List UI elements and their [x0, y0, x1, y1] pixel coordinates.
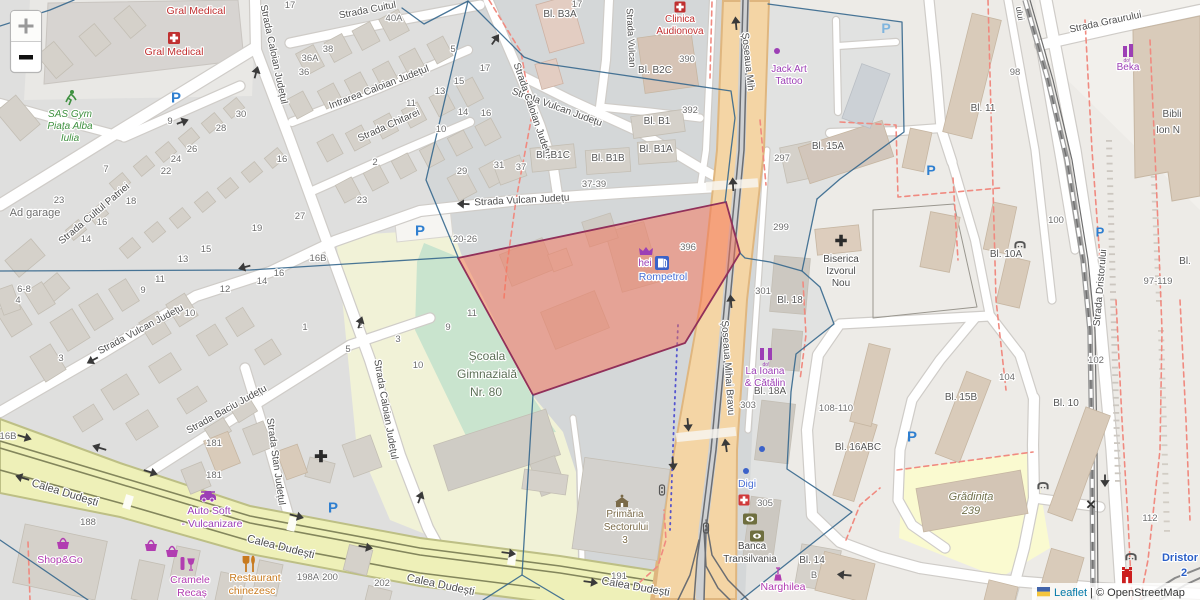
svg-text:16: 16 [277, 154, 288, 165]
svg-text:9: 9 [167, 116, 172, 127]
svg-text:3: 3 [58, 353, 63, 364]
svg-text:40A: 40A [386, 13, 404, 24]
svg-text:297: 297 [774, 153, 790, 164]
svg-text:15: 15 [454, 76, 465, 87]
svg-text:15: 15 [201, 244, 212, 255]
svg-text:Izvorul: Izvorul [826, 266, 855, 277]
svg-text:108-110: 108-110 [819, 403, 853, 414]
svg-text:303: 303 [740, 400, 756, 411]
svg-text:16B: 16B [0, 431, 16, 442]
svg-text:28: 28 [216, 123, 227, 134]
svg-text:16B: 16B [310, 253, 327, 264]
svg-text:Bl. B1A: Bl. B1A [639, 144, 673, 155]
svg-text:Cramele: Cramele [170, 574, 210, 586]
svg-text:✚: ✚ [835, 233, 848, 250]
svg-text:Transilvania: Transilvania [723, 554, 777, 565]
svg-text:7: 7 [103, 164, 108, 175]
svg-text:301: 301 [755, 286, 771, 297]
svg-text:13: 13 [178, 254, 189, 265]
svg-text:26: 26 [187, 144, 198, 155]
svg-text:305: 305 [757, 498, 773, 509]
svg-text:4: 4 [15, 295, 20, 306]
svg-text:18: 18 [126, 196, 137, 207]
svg-text:hei: hei [638, 258, 651, 269]
svg-text:Bl. B3A: Bl. B3A [543, 9, 577, 20]
svg-text:9: 9 [445, 322, 450, 333]
svg-text:13: 13 [435, 86, 446, 97]
svg-text:10: 10 [413, 360, 424, 371]
svg-text:P: P [926, 162, 935, 178]
svg-text:2: 2 [372, 157, 377, 168]
svg-text:97-119: 97-119 [1144, 276, 1173, 287]
svg-text:Ion N: Ion N [1156, 125, 1180, 136]
svg-text:Bl. B2C: Bl. B2C [638, 65, 672, 76]
svg-text:P: P [907, 428, 917, 445]
svg-text:16: 16 [481, 108, 492, 119]
svg-text:- Vulcanizare: - Vulcanizare [182, 518, 243, 530]
svg-text:Bl. 15A: Bl. 15A [812, 141, 845, 152]
svg-text:Bibli: Bibli [1163, 109, 1182, 120]
svg-text:P: P [1096, 225, 1105, 240]
svg-text:Clinica: Clinica [665, 14, 695, 25]
svg-text:104: 104 [999, 372, 1015, 383]
svg-text:Bl. 16ABC: Bl. 16ABC [835, 442, 881, 453]
svg-text:Rompetrol: Rompetrol [639, 271, 687, 283]
svg-text:22: 22 [161, 166, 172, 177]
svg-text:Grădinița: Grădinița [949, 491, 994, 503]
svg-text:Bl. 14: Bl. 14 [799, 555, 825, 566]
svg-text:12: 12 [220, 284, 231, 295]
svg-text:Bl. 15B: Bl. 15B [945, 392, 978, 403]
svg-text:P: P [881, 20, 890, 36]
svg-text:P: P [328, 499, 338, 516]
svg-text:Primăria: Primăria [606, 509, 644, 520]
svg-text:P: P [171, 89, 181, 106]
svg-text:202: 202 [374, 578, 390, 589]
svg-text:Nou: Nou [832, 278, 850, 289]
svg-text:20-26: 20-26 [453, 234, 477, 245]
svg-text:112: 112 [1142, 513, 1157, 524]
svg-text:11: 11 [467, 308, 477, 319]
svg-text:30: 30 [236, 109, 247, 120]
svg-text:29: 29 [457, 166, 468, 177]
svg-text:Nr. 80: Nr. 80 [470, 385, 502, 399]
svg-text:14: 14 [257, 276, 268, 287]
svg-text:16: 16 [97, 217, 108, 228]
svg-text:Gral Medical: Gral Medical [145, 46, 204, 58]
svg-text:19: 19 [252, 223, 263, 234]
svg-text:Școala: Școala [469, 349, 506, 363]
svg-text:392: 392 [682, 105, 698, 116]
svg-text:299: 299 [773, 222, 789, 233]
svg-text:do!: do! [1124, 58, 1131, 64]
svg-text:Biserica: Biserica [823, 254, 859, 265]
svg-text:181: 181 [206, 438, 222, 449]
svg-text:Recaș: Recaș [177, 587, 207, 599]
svg-text:3: 3 [395, 334, 400, 345]
svg-text:Tattoo: Tattoo [775, 76, 803, 87]
svg-text:36: 36 [299, 67, 310, 78]
svg-text:do!: do! [763, 362, 770, 368]
svg-text:188: 188 [80, 517, 96, 528]
svg-text:100: 100 [1048, 215, 1064, 226]
svg-text:200: 200 [322, 572, 338, 583]
svg-text:|: | [1090, 587, 1093, 599]
svg-text:SAS Gym: SAS Gym [48, 109, 92, 120]
svg-text:17: 17 [480, 63, 491, 74]
svg-text:10: 10 [185, 308, 196, 319]
svg-text:Leaflet: Leaflet [1054, 587, 1087, 599]
svg-text:✚: ✚ [314, 449, 327, 466]
svg-text:Digi: Digi [738, 478, 756, 490]
svg-text:Bl. B1: Bl. B1 [644, 116, 671, 127]
svg-text:Audionova: Audionova [656, 26, 704, 37]
svg-text:P: P [415, 222, 425, 239]
svg-text:23: 23 [357, 195, 368, 206]
svg-text:Bl. 10: Bl. 10 [1053, 398, 1079, 409]
svg-text:Gimnazială: Gimnazială [457, 367, 517, 381]
svg-text:102: 102 [1088, 355, 1104, 366]
svg-text:2: 2 [1181, 567, 1187, 579]
svg-text:181: 181 [206, 470, 222, 481]
svg-text:Ad garage: Ad garage [10, 207, 61, 219]
svg-text:5: 5 [345, 344, 350, 355]
svg-text:11: 11 [406, 98, 416, 109]
svg-text:198A: 198A [297, 572, 320, 583]
svg-text:Bl. B1B: Bl. B1B [591, 153, 625, 164]
svg-text:14: 14 [458, 107, 469, 118]
svg-text:24: 24 [171, 154, 182, 165]
svg-text:98: 98 [1010, 67, 1021, 78]
svg-text:27: 27 [295, 211, 306, 222]
svg-text:Bl. 11: Bl. 11 [971, 103, 996, 114]
svg-text:9: 9 [140, 285, 145, 296]
svg-text:191: 191 [611, 571, 627, 582]
svg-text:Shop&Go: Shop&Go [37, 554, 83, 566]
svg-text:Auto Soft: Auto Soft [187, 505, 230, 517]
svg-text:Bl. 18: Bl. 18 [777, 295, 803, 306]
svg-text:36A: 36A [302, 53, 320, 64]
svg-text:Piața Alba: Piața Alba [47, 121, 93, 132]
svg-text:10: 10 [436, 124, 447, 135]
svg-text:chinezesc: chinezesc [229, 585, 276, 597]
svg-text:Bl. B1C: Bl. B1C [536, 150, 570, 161]
svg-text:Restaurant: Restaurant [229, 572, 280, 584]
svg-text:Narghilea: Narghilea [761, 581, 806, 593]
svg-text:16: 16 [274, 268, 285, 279]
svg-text:1: 1 [302, 322, 307, 333]
svg-text:✕: ✕ [1086, 497, 1097, 512]
svg-text:390: 390 [679, 54, 695, 65]
svg-text:38: 38 [323, 44, 334, 55]
svg-text:3: 3 [622, 535, 628, 546]
svg-text:© OpenStreetMap: © OpenStreetMap [1096, 587, 1185, 599]
svg-text:37-39: 37-39 [582, 179, 606, 190]
svg-text:Bl.: Bl. [1179, 256, 1191, 267]
svg-text:239: 239 [961, 505, 980, 517]
svg-text:11: 11 [155, 274, 165, 285]
svg-text:14: 14 [81, 234, 92, 245]
svg-text:5: 5 [450, 44, 455, 55]
svg-text:396: 396 [680, 242, 696, 253]
svg-text:Banca: Banca [738, 541, 767, 552]
svg-text:Sectorului: Sectorului [604, 522, 648, 533]
svg-text:6-8: 6-8 [17, 284, 31, 295]
svg-text:& Cătălin: & Cătălin [745, 378, 786, 389]
svg-text:Dristor: Dristor [1162, 552, 1199, 564]
svg-text:Gral Medical: Gral Medical [167, 5, 226, 17]
svg-text:17: 17 [285, 0, 296, 11]
svg-text:Jack Art: Jack Art [771, 64, 807, 75]
svg-text:Bl. 10A: Bl. 10A [990, 249, 1023, 260]
svg-text:Iulia: Iulia [61, 133, 80, 144]
svg-text:B: B [811, 570, 817, 581]
svg-text:37: 37 [516, 162, 527, 173]
svg-text:31: 31 [494, 160, 505, 171]
svg-text:23: 23 [54, 195, 65, 206]
